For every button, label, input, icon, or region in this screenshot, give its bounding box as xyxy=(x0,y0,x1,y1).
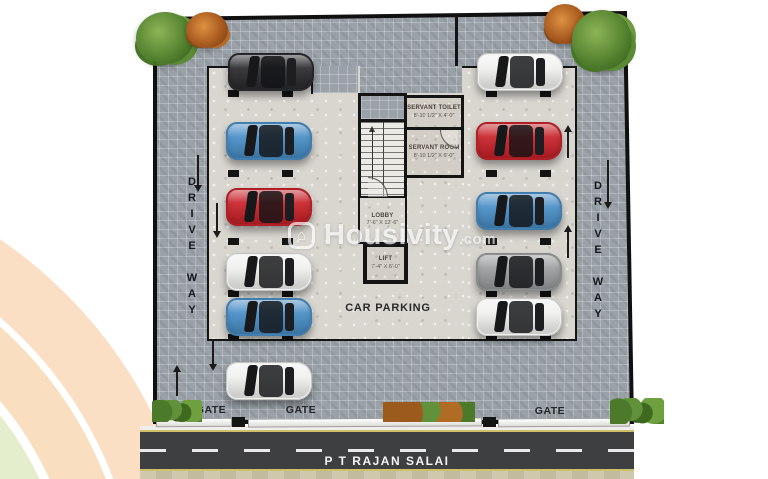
gate-post xyxy=(483,417,496,427)
car-white xyxy=(226,362,312,400)
paver-patch xyxy=(311,66,358,93)
background-arcs xyxy=(0,0,160,479)
tree-autumn xyxy=(186,12,228,48)
car-blue xyxy=(226,298,312,336)
car-parking-label: CAR PARKING xyxy=(308,302,468,314)
core-landing xyxy=(358,93,407,122)
stall-tick xyxy=(486,90,497,97)
stall-tick xyxy=(282,170,293,177)
room-dims: 8'-10 1/2" X 4'-0" xyxy=(414,113,455,120)
car-black xyxy=(228,53,314,91)
gate-3-label: GATE xyxy=(520,405,580,417)
stair-direction-arrow xyxy=(372,128,373,180)
room-dims: 7'-4" X 6'-0" xyxy=(371,264,400,271)
direction-arrow-down xyxy=(212,340,214,364)
watermark: ⌂ Housivity.com xyxy=(288,219,496,252)
stall-tick xyxy=(228,90,239,97)
car-red xyxy=(476,122,562,160)
tree-green xyxy=(572,10,632,70)
car-white xyxy=(477,53,563,91)
parking-floor-plan: SERVANT TOILET 8'-10 1/2" X 4'-0" SERVAN… xyxy=(0,0,768,479)
stall-tick xyxy=(486,290,497,297)
stall-tick xyxy=(282,90,293,97)
bay-line xyxy=(575,66,577,341)
road-name-label: P T RAJAN SALAI xyxy=(140,454,634,468)
stall-tick xyxy=(540,90,551,97)
stall-tick xyxy=(540,170,551,177)
direction-arrow-down xyxy=(216,203,218,231)
stall-tick xyxy=(228,170,239,177)
car-white xyxy=(226,253,312,291)
car-silver xyxy=(476,253,562,291)
car-blue xyxy=(226,122,312,160)
gate-2-label: GATE xyxy=(271,404,331,416)
drive-way-left-label: DRIVE WAY xyxy=(186,176,198,320)
wall-line xyxy=(455,14,458,66)
hedge xyxy=(383,402,475,422)
gate-post xyxy=(232,417,245,427)
road-center-dashes xyxy=(140,449,634,452)
car-white xyxy=(476,298,562,336)
stall-tick xyxy=(540,238,551,245)
stall-tick xyxy=(540,290,551,297)
bay-line xyxy=(207,339,577,341)
house-logo-icon: ⌂ xyxy=(288,222,315,249)
direction-arrow-up xyxy=(567,232,569,258)
direction-arrow-up xyxy=(567,132,569,158)
room-label: SERVANT TOILET xyxy=(407,105,461,113)
stall-tick xyxy=(486,170,497,177)
room-dims: 8'-10 1/2" X 6'-0" xyxy=(414,153,455,160)
hedge xyxy=(610,398,664,424)
stall-tick xyxy=(228,238,239,245)
room-servant-toilet: SERVANT TOILET 8'-10 1/2" X 4'-0" xyxy=(404,95,464,130)
watermark-suffix: .com xyxy=(459,231,496,248)
room-label: LIFT xyxy=(379,256,392,264)
road-verge xyxy=(140,471,634,479)
tree-green xyxy=(136,12,194,64)
drive-way-right-label: DRIVE WAY xyxy=(592,180,604,324)
stall-tick xyxy=(282,290,293,297)
road: P T RAJAN SALAI xyxy=(140,430,634,471)
direction-arrow-up xyxy=(176,372,178,396)
hedge xyxy=(152,400,202,422)
stall-tick xyxy=(228,290,239,297)
direction-arrow-down xyxy=(607,160,609,202)
watermark-text: Housivity.com xyxy=(324,219,496,252)
bay-line xyxy=(207,66,209,341)
